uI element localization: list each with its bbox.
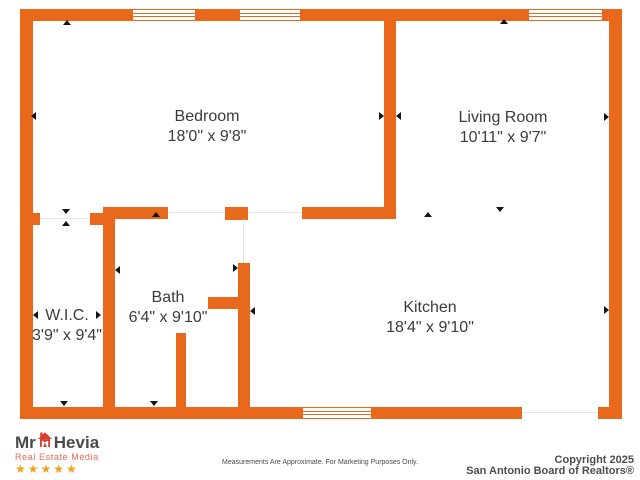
window-pane xyxy=(133,13,195,17)
room-label-kitchen: Kitchen 18'4" x 9'10" xyxy=(386,298,474,338)
measure-arrow xyxy=(233,264,238,272)
room-name: Kitchen xyxy=(386,298,474,318)
room-name: Living Room xyxy=(459,108,548,128)
wall-wic-bath-divider xyxy=(103,207,115,407)
brand-logo-subtitle: Real Estate Media xyxy=(15,452,99,462)
window-kitchen xyxy=(302,407,372,419)
measure-arrow xyxy=(604,306,609,314)
room-dimensions: 18'0" x 9'8" xyxy=(168,127,247,147)
wall-right xyxy=(609,9,622,419)
measure-arrow xyxy=(604,113,609,121)
measure-arrow xyxy=(60,401,68,406)
room-label-living-room: Living Room 10'11" x 9'7" xyxy=(459,108,548,148)
room-dimensions: 10'11" x 9'7" xyxy=(459,128,548,148)
wall-bedroom-living-divider xyxy=(384,21,396,217)
window-bedroom-2 xyxy=(239,9,301,21)
room-dimensions: 6'4" x 9'10" xyxy=(129,308,208,328)
measure-arrow xyxy=(150,401,158,406)
measure-arrow xyxy=(250,307,255,315)
room-label-bath: Bath 6'4" x 9'10" xyxy=(129,288,208,328)
window-pane xyxy=(303,411,371,415)
wall-bath-partition xyxy=(176,333,186,407)
window-bedroom-1 xyxy=(132,9,196,21)
room-label-wic: W.I.C. 3'9" x 9'4" xyxy=(32,306,102,346)
star-rating-icons: ★★★★★ xyxy=(15,463,99,475)
measure-arrow xyxy=(96,311,101,319)
window-pane xyxy=(240,13,300,17)
door-opening-line xyxy=(248,212,302,213)
floor-plan: Bedroom 18'0" x 9'8" Living Room 10'11" … xyxy=(0,0,640,480)
wall-bottom-left-segment xyxy=(20,407,522,419)
room-dimensions: 18'4" x 9'10" xyxy=(386,318,474,338)
window-living-room xyxy=(528,9,603,21)
room-name: W.I.C. xyxy=(32,306,102,326)
brand-logo-name: Mr Hevia xyxy=(15,431,99,451)
wall-bottom-right-segment xyxy=(598,407,622,419)
wall-bedroom-bottom-c xyxy=(302,207,396,219)
measure-arrow xyxy=(496,207,504,212)
measure-arrow xyxy=(152,212,160,217)
door-opening-line xyxy=(522,412,598,413)
measure-arrow xyxy=(62,221,70,226)
wall-bath-stub xyxy=(208,297,238,309)
measure-arrow xyxy=(500,19,508,24)
wall-wic-door-jamb-right xyxy=(90,213,103,225)
measure-arrow xyxy=(379,112,384,120)
wall-wic-door-jamb-left xyxy=(33,213,40,225)
room-label-bedroom: Bedroom 18'0" x 9'8" xyxy=(168,107,247,147)
measure-arrow xyxy=(31,112,36,120)
measure-arrow xyxy=(33,311,38,319)
measure-arrow xyxy=(62,209,70,214)
window-pane xyxy=(529,13,602,17)
measure-arrow xyxy=(424,212,432,217)
door-opening-line xyxy=(168,212,225,213)
door-opening-line xyxy=(243,219,244,263)
wall-bedroom-bottom-b xyxy=(225,207,248,220)
room-dimensions: 3'9" x 9'4" xyxy=(32,326,102,346)
measure-arrow xyxy=(115,266,120,274)
house-logo-icon xyxy=(37,431,53,451)
copyright-notice: Copyright 2025 San Antonio Board of Real… xyxy=(466,455,634,477)
copyright-line2: San Antonio Board of Realtors® xyxy=(466,466,634,477)
wall-left xyxy=(20,9,33,419)
wall-bath-right xyxy=(238,263,250,407)
door-opening-line xyxy=(40,218,90,219)
disclaimer-text: Measurements Are Approximate. For Market… xyxy=(222,459,418,466)
logo-name: Hevia xyxy=(54,434,99,451)
measure-arrow xyxy=(396,112,401,120)
measure-arrow xyxy=(63,20,71,25)
room-name: Bedroom xyxy=(168,107,247,127)
room-name: Bath xyxy=(129,288,208,308)
brand-logo: Mr Hevia Real Estate Media ★★★★★ xyxy=(15,431,99,475)
logo-prefix: Mr xyxy=(15,434,36,451)
